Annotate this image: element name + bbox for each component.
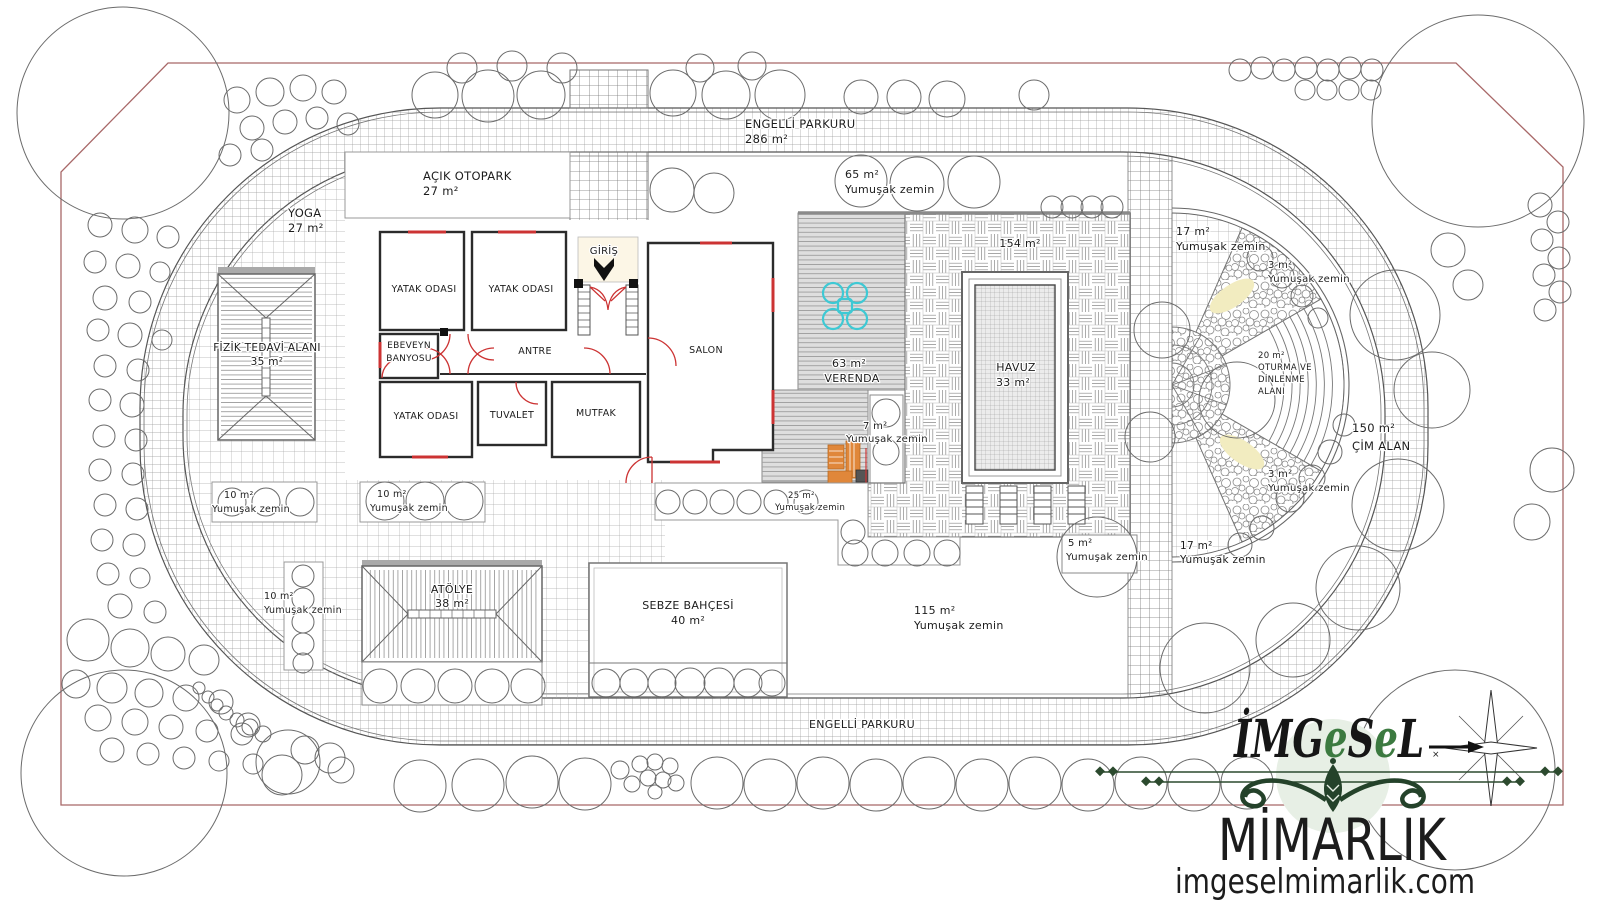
area-label: Yumuşak zemin <box>774 503 845 513</box>
area-label: Yumuşak zemin <box>369 503 448 514</box>
bedroom-1 <box>380 232 464 330</box>
kitchen <box>552 382 640 457</box>
area-label: 20 m² <box>1258 351 1285 361</box>
area-label: ENGELLİ PARKURU <box>809 718 915 731</box>
area-label: 27 m² <box>288 221 324 235</box>
area-label: Yumuşak zemin <box>913 619 1004 632</box>
area-label: 17 m² <box>1176 225 1210 238</box>
area-label: 3 m² <box>1268 469 1293 480</box>
area-label: YOGA <box>287 206 321 220</box>
area-label: 17 m² <box>1180 540 1213 552</box>
area-label: 33 m² <box>996 376 1030 389</box>
site-plan-page: ENGELLİ PARKURU286 m²65 m²Yumuşak zeminY… <box>0 0 1600 900</box>
area-label: GİRİŞ <box>590 244 618 257</box>
area-label: Yumuşak zemin <box>1267 274 1350 285</box>
bedroom-2 <box>472 232 566 330</box>
area-label: ANTRE <box>518 346 552 357</box>
area-label: ALANI <box>1258 387 1285 397</box>
area-label: Yumuşak zemin <box>1179 554 1266 566</box>
area-label: VERENDA <box>824 372 879 385</box>
area-label: 40 m² <box>671 614 705 627</box>
area-label: AÇIK OTOPARK <box>423 169 512 183</box>
area-label: YATAK ODASI <box>393 411 459 422</box>
wall-post <box>440 328 448 336</box>
area-label: 10 m² <box>264 591 294 602</box>
area-label: 10 m² <box>377 489 407 500</box>
area-label: 5 m² <box>1068 538 1093 549</box>
area-label: 65 m² <box>845 168 879 181</box>
area-label: 150 m² <box>1352 421 1395 435</box>
area-label: MUTFAK <box>576 408 617 419</box>
area-label: BANYOSU <box>386 354 432 364</box>
area-label: EBEVEYN <box>387 341 431 351</box>
area-label: 38 m² <box>435 597 469 610</box>
area-label: Yumuşak zemin <box>1267 483 1350 494</box>
area-label: 154 m² <box>999 237 1040 250</box>
area-label: 35 m² <box>251 356 284 368</box>
area-label: 27 m² <box>423 184 459 198</box>
website-url: imgeselmimarlik.com <box>1175 862 1475 900</box>
area-label: Yumuşak zemin <box>1175 240 1266 253</box>
site-plan-drawing: ENGELLİ PARKURU286 m²65 m²Yumuşak zeminY… <box>0 0 1600 900</box>
area-label: 63 m² <box>832 357 866 370</box>
area-label: HAVUZ <box>996 361 1036 374</box>
area-label: YATAK ODASI <box>391 284 457 295</box>
area-label: ATÖLYE <box>431 583 473 596</box>
area-label: 115 m² <box>914 604 955 617</box>
area-label: OTURMA VE <box>1258 363 1312 373</box>
area-label: YATAK ODASI <box>488 284 554 295</box>
door-post <box>629 279 638 288</box>
workshop <box>362 560 542 705</box>
compass-mark: ⨯ <box>1432 750 1440 760</box>
area-label: 3 m² <box>1268 260 1293 271</box>
area-label: Yumuşak zemin <box>845 434 928 445</box>
area-label: Yumuşak zemin <box>1065 552 1148 563</box>
area-label: Yumuşak zemin <box>844 183 935 196</box>
area-label: ÇİM ALAN <box>1352 438 1410 453</box>
area-label: FİZİK TEDAVİ ALANI <box>213 341 321 354</box>
driveway <box>570 70 648 233</box>
area-label: 286 m² <box>745 132 788 146</box>
area-label: Yumuşak zemin <box>263 605 342 616</box>
area-label: 7 m² <box>863 421 888 432</box>
door-post <box>574 279 583 288</box>
area-label: DİNLENME <box>1258 374 1305 385</box>
area-label: SEBZE BAHÇESİ <box>642 599 734 612</box>
area-label: SALON <box>689 345 723 356</box>
area-label: 10 m² <box>224 490 254 501</box>
brand-wordmark: İMGeSeL <box>1233 707 1424 770</box>
area-label: TUVALET <box>489 410 534 421</box>
area-label: Yumuşak zemin <box>211 504 290 515</box>
area-label: 25 m² <box>788 491 815 501</box>
area-label: ENGELLİ PARKURU <box>745 116 856 131</box>
